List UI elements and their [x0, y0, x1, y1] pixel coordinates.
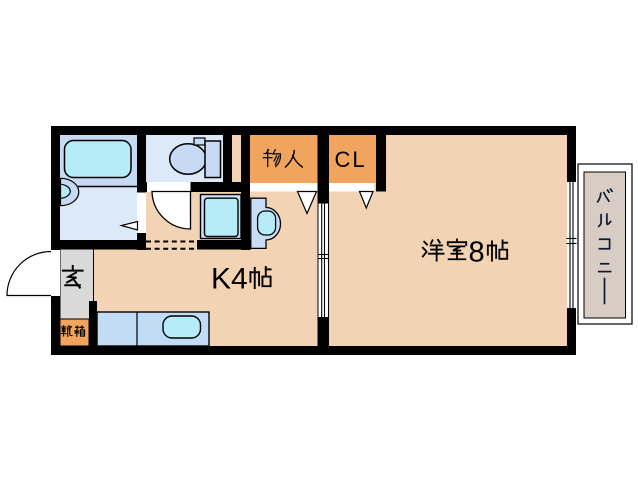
svg-text:8: 8 — [469, 237, 485, 269]
svg-text:K4: K4 — [211, 263, 248, 296]
svg-text:CL: CL — [334, 147, 366, 172]
